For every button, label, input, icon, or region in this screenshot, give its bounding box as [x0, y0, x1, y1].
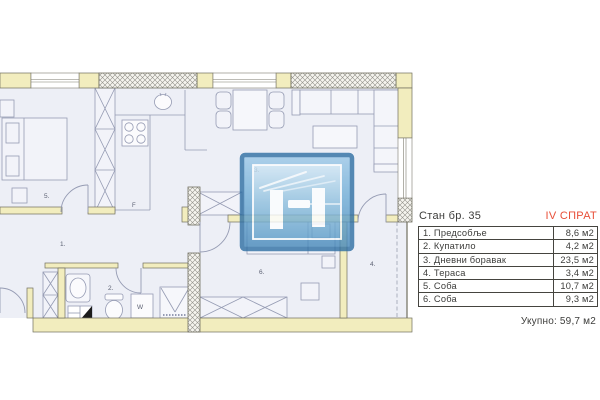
room-label-hallway: 1.	[60, 241, 66, 248]
room-area: 9,3 м2	[553, 293, 597, 305]
apartment-title: Стан бр. 35	[419, 210, 481, 222]
room-label-terrace: 4.	[370, 261, 376, 268]
panel-header: Стан бр. 35 IV СПРАТ	[419, 210, 597, 222]
shower-symbol	[160, 287, 190, 318]
toilet-symbol	[105, 294, 123, 320]
floor-badge: IV СПРАТ	[546, 210, 598, 222]
room-label-bedroom1: 5.	[44, 193, 50, 200]
room-name: 3. Дневни боравак	[419, 254, 553, 266]
brand-house-logo-watermark	[242, 155, 352, 249]
floor-plan: 5. 1. 2. 3. 4. 6. F W	[0, 0, 420, 400]
fridge-label: F	[132, 203, 136, 209]
washing-machine-label: W	[137, 304, 144, 311]
coffee-table-symbol	[313, 126, 357, 148]
area-table: 1. Предсобље 8,6 м2 2. Купатило 4,2 м2 3…	[418, 226, 598, 307]
room-name: 5. Соба	[419, 280, 553, 292]
room-label-bathroom: 2.	[108, 285, 114, 292]
table-row: 3. Дневни боравак 23,5 м2	[419, 254, 597, 267]
desk-symbol	[301, 283, 319, 300]
room-name: 6. Соба	[419, 293, 553, 305]
shelf-symbol	[0, 100, 14, 117]
total-area: Укупно: 59,7 м2	[418, 316, 598, 327]
room-area: 4,2 м2	[553, 240, 597, 252]
floorplan-page: 5. 1. 2. 3. 4. 6. F W Стан бр. 35 IV СПР…	[0, 0, 600, 400]
table-row: 1. Предсобље 8,6 м2	[419, 227, 597, 240]
room-area: 23,5 м2	[553, 254, 597, 266]
table-row: 5. Соба 10,7 м2	[419, 280, 597, 293]
nightstand2-symbol	[322, 256, 335, 268]
table-row: 2. Купатило 4,2 м2	[419, 240, 597, 253]
room-label-bedroom2: 6.	[259, 269, 265, 276]
room-area: 3,4 м2	[553, 267, 597, 279]
room-name: 1. Предсобље	[419, 227, 553, 239]
apartment-info-panel: Стан бр. 35 IV СПРАТ 1. Предсобље 8,6 м2…	[418, 210, 598, 327]
stove-symbol	[122, 120, 148, 146]
room-name: 4. Тераса	[419, 267, 553, 279]
table-row: 4. Тераса 3,4 м2	[419, 267, 597, 280]
bath-sink-symbol	[66, 274, 90, 302]
room-area: 8,6 м2	[553, 227, 597, 239]
room-area: 10,7 м2	[553, 280, 597, 292]
bed-symbol	[2, 118, 67, 180]
table-row: 6. Соба 9,3 м2	[419, 293, 597, 305]
room-name: 2. Купатило	[419, 240, 553, 252]
nightstand-symbol	[12, 188, 27, 203]
